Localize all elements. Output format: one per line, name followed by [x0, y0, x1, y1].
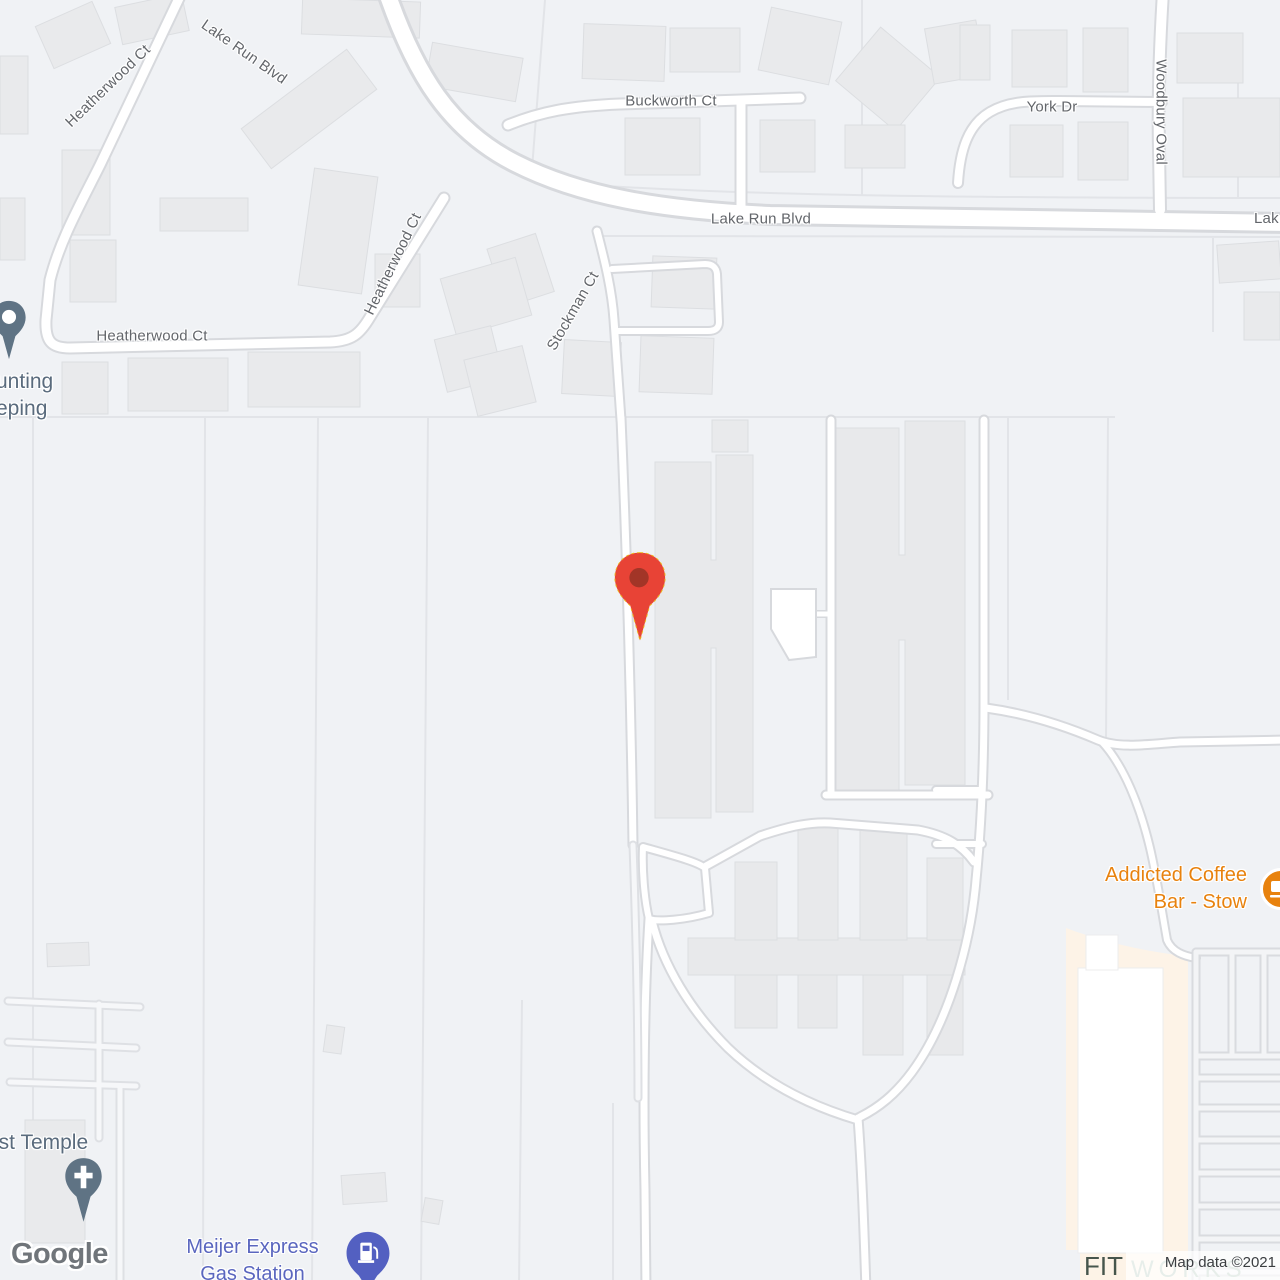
gas-pump-window [363, 1246, 370, 1251]
business-pin-dot [2, 310, 16, 324]
street-label-york-dr: York Dr [1027, 99, 1078, 116]
poi-label-meijer[interactable]: Meijer Express Gas Station [150, 1234, 355, 1280]
poi-label-fitworks-fit[interactable]: FIT [1084, 1251, 1123, 1280]
map-data-attribution: Map data ©2021 [1126, 1254, 1276, 1271]
gas-pump-base [358, 1260, 374, 1263]
coffee-saucer [1270, 895, 1280, 898]
poi-label-meijer-line1: Meijer Express [150, 1234, 355, 1261]
street-label-lake-run-horizontal: Lake Run Blvd [711, 211, 811, 228]
poi-label-coffee-line1: Addicted Coffee [1040, 862, 1247, 889]
temple-pin[interactable] [61, 1156, 106, 1226]
coffee-marker[interactable] [1259, 867, 1280, 911]
apartment-building-h2 [833, 421, 965, 790]
google-logo[interactable]: Google [11, 1238, 108, 1271]
street-label-buckworth-ct: Buckworth Ct [625, 93, 717, 110]
meijer-pin[interactable] [345, 1230, 391, 1280]
main-location-pin[interactable] [611, 549, 669, 647]
poi-label-coffee-line2: Bar - Stow [1040, 889, 1247, 916]
street-label-woodbury-oval: Woodbury Oval [1153, 59, 1170, 165]
coffee-cup-icon [1271, 881, 1280, 892]
red-pin-icon [615, 553, 665, 641]
poi-label-accounting-line2: eping [0, 395, 53, 422]
street-label-heatherwood-horizontal: Heatherwood Ct [96, 328, 207, 345]
fitworks-building [1078, 935, 1163, 1253]
map-canvas[interactable]: Heatherwood Ct Lake Run Blvd Buckworth C… [0, 0, 1280, 1280]
accounting-pin[interactable] [0, 299, 33, 363]
poi-label-coffee[interactable]: Addicted Coffee Bar - Stow [1040, 862, 1247, 916]
business-pin-icon [0, 301, 26, 359]
poi-label-meijer-line2: Gas Station [150, 1261, 355, 1280]
apartment-building-h1 [655, 455, 753, 818]
poi-label-accounting-line1: unting [0, 368, 53, 395]
gas-pump-icon [360, 1243, 372, 1261]
poi-label-temple[interactable]: ist Temple [0, 1129, 88, 1156]
poi-label-accounting[interactable]: unting eping [0, 368, 53, 422]
street-label-lake-run-clipped: Lak [1254, 210, 1279, 227]
red-pin-center-dot [629, 568, 648, 587]
